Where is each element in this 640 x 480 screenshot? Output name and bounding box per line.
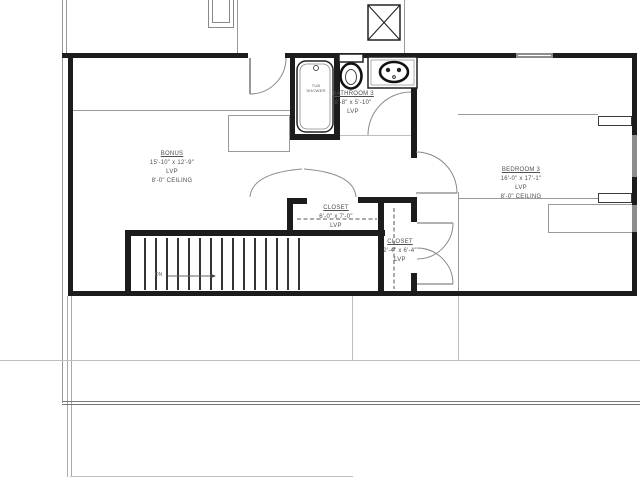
room-name: BONUS [150,150,194,159]
floor-plan-canvas: BONUS 15'-10" x 12'-9" LVP 8'-0" CEILING… [0,0,640,480]
room-label-bedroom3: BEDROOM 3 16'-0" x 17'-1" LVP 8'-0" CEIL… [501,166,542,202]
room-label-closet-bedroom: CLOSET 2'-4" x 6'-4" LVP [383,238,416,265]
room-name: CLOSET [383,238,416,247]
room-dimensions: 6'-0" x 7'-0" [319,213,352,222]
door-swing-attic [250,58,286,94]
room-label-closet-hall: CLOSET 6'-0" x 7'-0" LVP [319,204,352,231]
door-swing-bathroom [368,92,411,135]
room-dimensions: 16'-0" x 17'-1" [501,175,542,184]
tub-shower-fixture [297,61,333,132]
toilet-fixture [339,54,363,89]
dn-arrow [168,274,216,279]
stairs-dn-label: DN [155,273,163,278]
room-label-bonus: BONUS 15'-10" x 12'-9" LVP 8'-0" CEILING [150,150,194,186]
door-swing-closet2-double [417,223,453,284]
x-box-chase [368,5,400,40]
room-ceiling: 8'-0" CEILING [501,193,542,202]
stair-treads [145,238,299,290]
door-swing-closet-double [250,169,356,197]
room-name: CLOSET [319,204,352,213]
plan-overlay [0,0,640,480]
room-flooring: LVP [383,256,416,265]
room-flooring: LVP [319,222,352,231]
sink-vanity-fixture [368,57,417,88]
room-ceiling: 8'-0" CEILING [150,177,194,186]
room-dimensions: 8'-8" x 5'-10" [332,99,374,108]
room-dimensions: 2'-4" x 6'-4" [383,247,416,256]
room-dimensions: 15'-10" x 12'-9" [150,159,194,168]
tub-label-line2: SHOWER [306,88,325,93]
room-label-bathroom3: BATHROOM 3 8'-8" x 5'-10" LVP [332,90,374,117]
room-name: BEDROOM 3 [501,166,542,175]
door-swing-bedroom3 [416,152,457,193]
room-flooring: LVP [150,168,194,177]
room-flooring: LVP [501,184,542,193]
tub-shower-label: TUB SHOWER [306,83,325,93]
room-flooring: LVP [332,108,374,117]
room-name: BATHROOM 3 [332,90,374,99]
